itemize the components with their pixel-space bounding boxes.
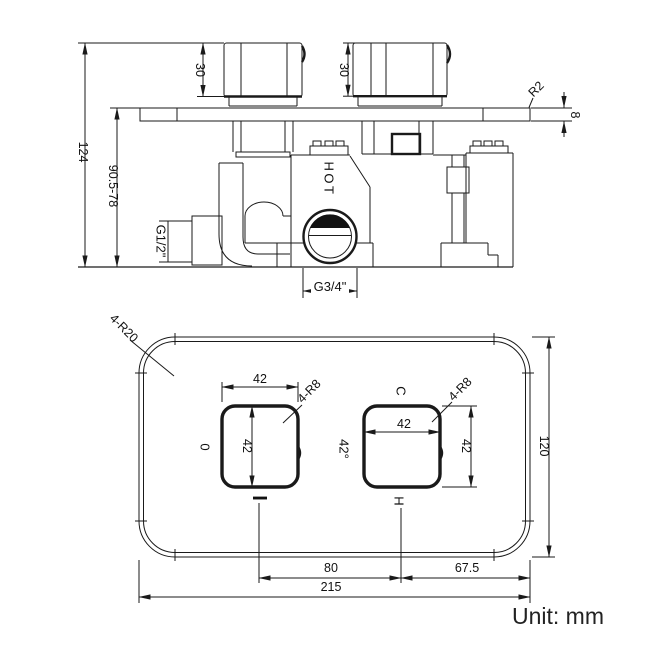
edge-offset-label: 67.5: [455, 561, 479, 575]
right-handle-width-label: 42: [397, 417, 411, 431]
outlet-thread-label: G3/4": [314, 279, 347, 294]
left-handle-side: [224, 43, 305, 157]
elbow-inner: [243, 163, 290, 254]
cold-mark: C: [394, 386, 409, 395]
unit-note: Unit: mm: [512, 603, 604, 629]
center-spacing-label: 80: [324, 561, 338, 575]
dimension-adjust-range: 90.5-78: [106, 108, 141, 267]
right-handle-front: 42 42 4-R8 C 42° H: [337, 375, 478, 583]
plate-thickness-label: 8: [568, 112, 582, 119]
hot-marking: HOT: [322, 162, 337, 197]
front-view: 4-R20 42 42 4-R8 0 I: [107, 311, 555, 603]
dimension-plate-thickness: 8: [531, 92, 582, 137]
inlet-thread-label: G1/2": [154, 225, 169, 258]
overall-height-label: 124: [76, 142, 90, 163]
dimension-outlet-thread: G3/4": [303, 268, 357, 298]
on-mark: I: [248, 495, 270, 501]
side-view: 124 90.5-78: [76, 43, 582, 298]
outlet-ring-shadow: [310, 214, 350, 228]
left-handle-height-label: 42: [240, 439, 254, 453]
mounting-plate-side: [140, 108, 530, 121]
right-handle-height-label: 30: [337, 63, 351, 77]
adjust-range-label: 90.5-78: [106, 165, 120, 207]
hot-mark: H: [392, 496, 407, 505]
off-mark: 0: [198, 443, 213, 450]
dimension-center-spacing: 80: [259, 561, 401, 578]
shower-valve-drawing: 124 90.5-78: [0, 0, 650, 650]
technical-drawing-page: 124 90.5-78: [0, 0, 650, 650]
left-handle-radius-label: 4-R8: [295, 377, 324, 406]
faceplate-outline: [135, 333, 534, 561]
inlet-port: [168, 221, 192, 262]
dimension-plate-height: 120: [532, 337, 555, 557]
dimension-right-handle-height: 30: [337, 43, 355, 96]
plate-height-label: 120: [537, 436, 551, 457]
dimension-left-handle-height: 30: [193, 43, 226, 97]
plate-width-label: 215: [321, 580, 342, 594]
inlet-flange: [192, 216, 222, 265]
faceplate-radius-label: 4-R20: [107, 311, 141, 345]
right-cap: [470, 146, 508, 153]
left-handle-front: 42 42 4-R8 0 I: [198, 372, 324, 583]
left-handle-height-label: 30: [193, 63, 207, 77]
valve-body: [159, 141, 513, 267]
plate-radius-label: R2: [526, 79, 547, 100]
left-handle-width-label: 42: [253, 372, 267, 386]
dome: [245, 202, 283, 216]
top-cap: [310, 146, 348, 155]
right-handle-height-label: 42: [459, 439, 473, 453]
temp-mark: 42°: [337, 439, 352, 459]
plate-radius-callout: R2: [526, 79, 547, 108]
right-handle-side: [353, 43, 450, 154]
right-handle-radius-label: 4-R8: [446, 375, 475, 404]
cartridge-nut: [392, 134, 420, 154]
